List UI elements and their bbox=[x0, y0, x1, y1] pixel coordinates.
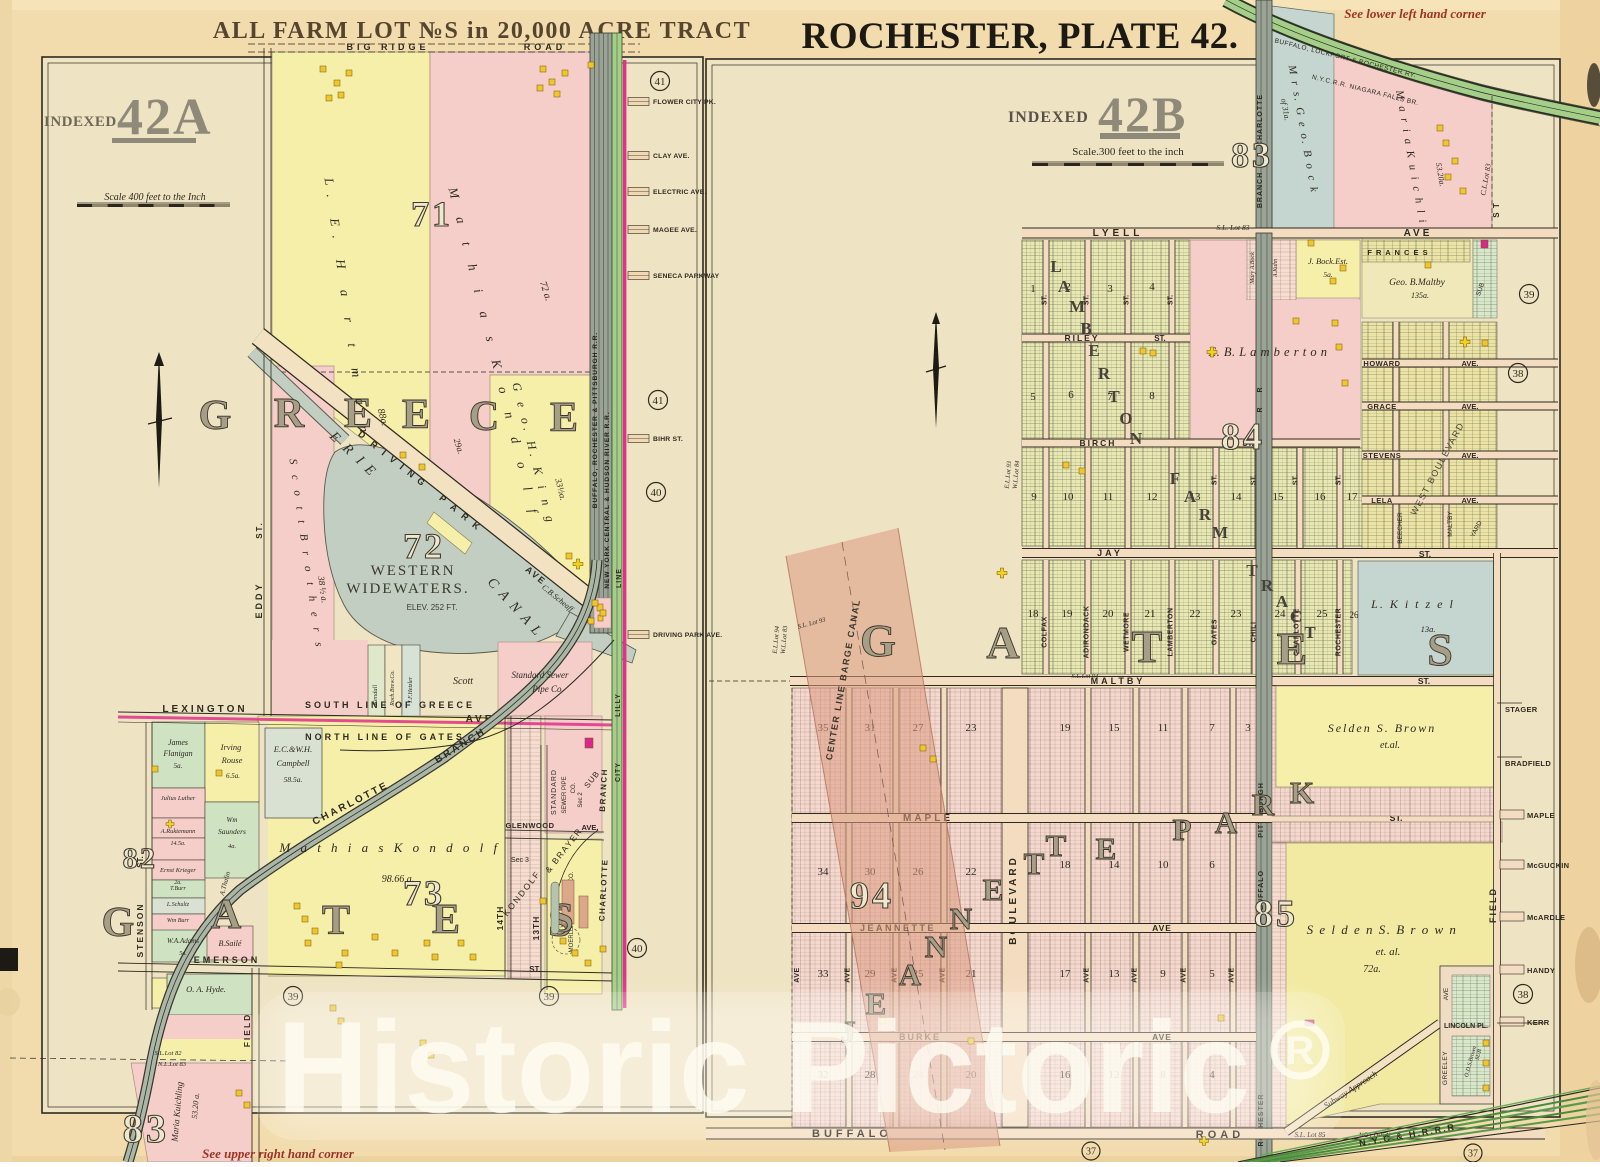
svg-text:MAPLE: MAPLE bbox=[1527, 811, 1555, 820]
svg-text:EMERSON: EMERSON bbox=[194, 955, 261, 965]
svg-text:8: 8 bbox=[1149, 390, 1155, 402]
svg-text:BIHR ST.: BIHR ST. bbox=[653, 436, 683, 443]
svg-text:FLOWER CITY PK.: FLOWER CITY PK. bbox=[653, 99, 716, 106]
svg-text:BRANCH: BRANCH bbox=[1257, 172, 1264, 208]
svg-text:A.Ruktemann: A.Ruktemann bbox=[160, 828, 196, 835]
svg-text:6.5a.: 6.5a. bbox=[226, 772, 240, 780]
svg-text:S.L.Lot 94: S.L.Lot 94 bbox=[1072, 673, 1100, 680]
svg-text:FIELD: FIELD bbox=[1488, 887, 1498, 923]
svg-text:Campbell: Campbell bbox=[276, 758, 310, 768]
svg-text:See upper right hand corne: See upper right hand corner bbox=[202, 1146, 355, 1161]
svg-text:15: 15 bbox=[1109, 722, 1121, 734]
svg-text:GLENWOOD: GLENWOOD bbox=[506, 821, 555, 830]
svg-text:R: R bbox=[274, 391, 305, 437]
svg-text:N.L.Lot 83: N.L.Lot 83 bbox=[157, 1061, 187, 1068]
svg-text:O. A. Hyde.: O. A. Hyde. bbox=[186, 984, 226, 994]
svg-text:WESTERN: WESTERN bbox=[371, 563, 456, 579]
svg-text:R: R bbox=[1252, 787, 1275, 822]
svg-text:GREELEY: GREELEY bbox=[1442, 1051, 1449, 1085]
svg-text:Mary A.Bock: Mary A.Bock bbox=[1250, 252, 1256, 285]
svg-text:WIDEWATERS.: WIDEWATERS. bbox=[346, 581, 469, 597]
svg-text:P: P bbox=[1173, 812, 1192, 847]
svg-text:F: F bbox=[1170, 469, 1180, 488]
svg-text:ST.: ST. bbox=[1336, 475, 1343, 485]
svg-text:5a.: 5a. bbox=[174, 762, 183, 770]
svg-text:ROAD: ROAD bbox=[524, 42, 567, 52]
svg-text:Geo. B.Maltby: Geo. B.Maltby bbox=[1389, 278, 1445, 288]
svg-text:Rouse: Rouse bbox=[221, 755, 243, 765]
svg-text:LYELL: LYELL bbox=[1093, 228, 1144, 239]
svg-text:ELEV. 252 FT.: ELEV. 252 FT. bbox=[407, 603, 458, 612]
svg-text:CO.: CO. bbox=[571, 782, 577, 793]
svg-text:94: 94 bbox=[850, 875, 894, 917]
svg-text:N: N bbox=[950, 901, 972, 936]
svg-text:LINE: LINE bbox=[616, 568, 623, 588]
svg-text:BUFFALO, ROCHESTER & PITTSB: BUFFALO, ROCHESTER & PITTSBURGH R.R. bbox=[592, 332, 599, 508]
svg-text:5a.: 5a. bbox=[1323, 270, 1333, 279]
svg-text:98.66 a.: 98.66 a. bbox=[382, 874, 415, 885]
svg-text:72: 72 bbox=[403, 526, 445, 566]
svg-text:AVE.: AVE. bbox=[1462, 496, 1479, 505]
svg-text:84: 84 bbox=[1221, 416, 1265, 458]
svg-text:Pipe Co.: Pipe Co. bbox=[531, 684, 564, 694]
svg-text:S.L.Lot 82: S.L.Lot 82 bbox=[155, 1050, 183, 1057]
svg-text:MAGEE AVE.: MAGEE AVE. bbox=[653, 227, 697, 234]
svg-text:4: 4 bbox=[1149, 281, 1155, 293]
svg-text:G: G bbox=[199, 393, 232, 439]
svg-text:R: R bbox=[1098, 364, 1111, 383]
svg-text:L. K i t z e l: L. K i t z e l bbox=[1370, 597, 1455, 611]
svg-text:MALTBY: MALTBY bbox=[1091, 676, 1146, 686]
svg-text:GATES: GATES bbox=[1212, 619, 1219, 645]
svg-text:13: 13 bbox=[1109, 968, 1121, 980]
svg-text:L: L bbox=[1050, 257, 1061, 276]
svg-text:83: 83 bbox=[123, 1106, 169, 1151]
svg-text:See lower left hand corner: See lower left hand corner bbox=[1344, 6, 1486, 21]
svg-text:NORTH LINE OF GATES: NORTH LINE OF GATES bbox=[305, 732, 465, 742]
svg-text:13TH: 13TH bbox=[531, 916, 541, 941]
svg-text:ST.: ST. bbox=[1293, 475, 1300, 485]
svg-text:41: 41 bbox=[653, 395, 664, 407]
svg-text:LILLY: LILLY bbox=[615, 693, 622, 717]
svg-text:KERR: KERR bbox=[1527, 1018, 1550, 1027]
svg-text:14.5a.: 14.5a. bbox=[171, 840, 186, 847]
svg-text:McGUCKIN: McGUCKIN bbox=[1527, 861, 1569, 870]
svg-text:6: 6 bbox=[1068, 389, 1074, 401]
svg-text:W.A.Adams: W.A.Adams bbox=[167, 937, 199, 945]
svg-text:STANDARD: STANDARD bbox=[551, 769, 558, 815]
svg-text:20: 20 bbox=[1103, 608, 1115, 620]
svg-text:Scale.300 feet to the inch: Scale.300 feet to the inch bbox=[1072, 146, 1184, 158]
svg-text:37: 37 bbox=[1086, 1147, 1096, 1158]
svg-text:Kendall: Kendall bbox=[372, 685, 379, 707]
svg-text:10: 10 bbox=[1063, 491, 1075, 503]
svg-text:39: 39 bbox=[1524, 289, 1536, 301]
svg-text:T: T bbox=[1246, 561, 1258, 580]
svg-text:82: 82 bbox=[123, 842, 158, 875]
svg-text:F R A N C E S: F R A N C E S bbox=[1367, 248, 1428, 257]
svg-text:1: 1 bbox=[1030, 283, 1036, 295]
svg-text:INDEXED: INDEXED bbox=[1008, 109, 1089, 126]
svg-text:NEW YORK CENTRAL & HUDSON: NEW YORK CENTRAL & HUDSON RIVER R.R. bbox=[604, 411, 611, 588]
svg-text:ST.: ST. bbox=[1154, 334, 1166, 343]
svg-text:HANDY: HANDY bbox=[1527, 966, 1555, 975]
svg-text:S e l d e n S. B r o w n: S e l d e n S. B r o w n bbox=[1307, 922, 1458, 937]
svg-text:A: A bbox=[899, 957, 922, 992]
svg-text:O: O bbox=[1119, 409, 1132, 428]
svg-text:N: N bbox=[1130, 429, 1143, 448]
svg-text:ROCHESTER: ROCHESTER bbox=[1336, 608, 1343, 656]
svg-text:AVE: AVE bbox=[845, 967, 852, 982]
svg-text:LAMBERTON: LAMBERTON bbox=[1168, 607, 1175, 656]
svg-text:LINCOLN PL.: LINCOLN PL. bbox=[1444, 1023, 1488, 1030]
svg-text:17: 17 bbox=[1347, 491, 1359, 503]
svg-text:6: 6 bbox=[1209, 859, 1215, 871]
svg-text:AVE: AVE bbox=[1152, 923, 1172, 933]
svg-text:58.5a.: 58.5a. bbox=[284, 775, 303, 784]
svg-text:33: 33 bbox=[818, 968, 830, 980]
svg-text:E. B. L a m b e r t o n: E. B. L a m b e r t o n bbox=[1208, 345, 1328, 359]
svg-text:T: T bbox=[1024, 846, 1045, 881]
svg-text:LELA: LELA bbox=[1371, 496, 1393, 505]
svg-text:AVE: AVE bbox=[1229, 967, 1236, 982]
svg-text:38: 38 bbox=[1518, 989, 1530, 1001]
svg-text:ALL FARM LOT №S in 20,000 ACRE: ALL FARM LOT №S in 20,000 ACRE TRACT bbox=[213, 18, 751, 44]
svg-text:BEECHER: BEECHER bbox=[1397, 512, 1404, 544]
svg-text:Irving: Irving bbox=[220, 742, 242, 752]
svg-text:GRACE: GRACE bbox=[1367, 402, 1397, 411]
svg-text:K: K bbox=[1290, 775, 1314, 810]
svg-text:83: 83 bbox=[1231, 135, 1273, 175]
svg-text:AVE: AVE bbox=[1084, 967, 1091, 982]
svg-text:71: 71 bbox=[411, 194, 453, 234]
svg-text:38: 38 bbox=[1513, 368, 1525, 380]
svg-text:R: R bbox=[1286, 1029, 1315, 1073]
svg-text:AVE: AVE bbox=[1132, 967, 1139, 982]
svg-text:ADIRONDACK: ADIRONDACK bbox=[1084, 606, 1091, 659]
svg-text:Standard Sewer: Standard Sewer bbox=[512, 670, 569, 680]
svg-text:B.Sailé: B.Sailé bbox=[219, 939, 242, 948]
svg-text:ST.: ST. bbox=[1418, 676, 1430, 686]
svg-text:WETMORE: WETMORE bbox=[1124, 612, 1131, 652]
svg-text:16: 16 bbox=[1315, 491, 1327, 503]
svg-text:41: 41 bbox=[655, 76, 666, 88]
svg-text:T: T bbox=[322, 898, 350, 944]
svg-text:EDDY: EDDY bbox=[254, 581, 264, 618]
svg-text:JAY: JAY bbox=[1097, 548, 1123, 558]
svg-text:S.L. Lot 83: S.L. Lot 83 bbox=[1217, 223, 1250, 232]
svg-text:40: 40 bbox=[651, 487, 663, 499]
svg-text:COLFAX: COLFAX bbox=[1042, 616, 1049, 647]
svg-text:E: E bbox=[402, 392, 430, 438]
svg-text:E: E bbox=[1096, 831, 1117, 866]
svg-text:4a.: 4a. bbox=[228, 843, 237, 850]
svg-text:M: M bbox=[1212, 523, 1228, 542]
svg-text:N: N bbox=[925, 929, 947, 964]
svg-text:17: 17 bbox=[1060, 968, 1072, 980]
svg-text:7: 7 bbox=[1209, 722, 1215, 734]
svg-text:L.Schultz: L.Schultz bbox=[166, 902, 190, 908]
svg-text:BIRCH: BIRCH bbox=[1080, 438, 1117, 448]
svg-text:G: G bbox=[860, 615, 896, 666]
svg-text:LEXINGTON: LEXINGTON bbox=[162, 704, 247, 715]
svg-text:ELECTRIC AVE.: ELECTRIC AVE. bbox=[653, 189, 707, 196]
svg-text:15: 15 bbox=[1273, 491, 1285, 503]
svg-text:C: C bbox=[469, 394, 499, 440]
svg-text:E: E bbox=[550, 395, 578, 441]
svg-text:BIG RIDGE: BIG RIDGE bbox=[346, 42, 429, 52]
svg-text:14: 14 bbox=[1231, 491, 1243, 503]
svg-text:E.C.&W.H.: E.C.&W.H. bbox=[273, 744, 312, 754]
svg-text:40: 40 bbox=[632, 943, 644, 955]
svg-text:SEWER PIPE: SEWER PIPE bbox=[562, 776, 568, 813]
svg-text:R: R bbox=[1199, 505, 1212, 524]
svg-text:ST.: ST. bbox=[1168, 295, 1175, 305]
svg-text:INDEXED: INDEXED bbox=[44, 114, 117, 130]
svg-text:James: James bbox=[168, 738, 188, 747]
svg-text:Sec 2: Sec 2 bbox=[578, 792, 584, 808]
svg-text:19: 19 bbox=[1062, 608, 1074, 620]
svg-text:B: B bbox=[1080, 319, 1091, 338]
svg-text:E: E bbox=[1088, 341, 1099, 360]
svg-text:A: A bbox=[1276, 592, 1289, 611]
svg-text:12: 12 bbox=[1147, 491, 1158, 503]
svg-text:9: 9 bbox=[1160, 968, 1166, 980]
svg-text:18: 18 bbox=[1028, 608, 1040, 620]
svg-text:37: 37 bbox=[1468, 1149, 1478, 1160]
svg-text:Selden S. Brown: Selden S. Brown bbox=[1328, 721, 1437, 735]
svg-text:Sec 3: Sec 3 bbox=[511, 857, 529, 864]
svg-text:Saunders: Saunders bbox=[218, 827, 246, 836]
svg-text:Wm Burr: Wm Burr bbox=[167, 918, 190, 924]
svg-text:26: 26 bbox=[1350, 610, 1360, 620]
svg-text:34: 34 bbox=[818, 866, 830, 878]
svg-text:Scott: Scott bbox=[453, 676, 473, 687]
svg-text:ST.: ST. bbox=[1419, 549, 1431, 559]
svg-text:5: 5 bbox=[1209, 968, 1215, 980]
svg-text:AVE: AVE bbox=[1443, 987, 1450, 1000]
svg-text:22: 22 bbox=[1190, 608, 1201, 620]
svg-text:23: 23 bbox=[1231, 608, 1243, 620]
svg-text:R: R bbox=[1257, 387, 1264, 392]
svg-text:T: T bbox=[1108, 387, 1120, 406]
svg-text:ST.: ST. bbox=[1251, 475, 1258, 485]
svg-text:FIELD: FIELD bbox=[242, 1013, 252, 1048]
svg-text:ST.: ST. bbox=[529, 965, 541, 974]
svg-text:R: R bbox=[1261, 576, 1274, 595]
svg-text:Roch.Brew.Co.: Roch.Brew.Co. bbox=[390, 670, 396, 707]
svg-text:25: 25 bbox=[1317, 608, 1329, 620]
svg-text:McARDLE: McARDLE bbox=[1527, 913, 1565, 922]
svg-text:AVE.: AVE. bbox=[1462, 451, 1479, 460]
svg-text:3: 3 bbox=[1107, 283, 1113, 295]
svg-text:DRIVING PARK AVE.: DRIVING PARK AVE. bbox=[653, 632, 722, 639]
svg-text:E: E bbox=[983, 872, 1004, 907]
svg-text:A: A bbox=[986, 617, 1019, 668]
svg-text:A: A bbox=[1058, 277, 1071, 296]
svg-text:A.Kuhn: A.Kuhn bbox=[1273, 259, 1279, 278]
svg-text:A: A bbox=[211, 892, 242, 938]
svg-text:11: 11 bbox=[1103, 491, 1114, 503]
svg-text:22: 22 bbox=[966, 866, 977, 878]
svg-text:11: 11 bbox=[1158, 722, 1169, 734]
svg-text:AVE.: AVE. bbox=[1462, 359, 1479, 368]
svg-text:AVE: AVE bbox=[794, 967, 801, 982]
svg-text:ST.: ST. bbox=[1042, 295, 1049, 305]
svg-text:J. Bock.Est.: J. Bock.Est. bbox=[1308, 256, 1348, 266]
svg-text:STEVENS: STEVENS bbox=[1363, 451, 1402, 460]
svg-text:Ernst Krieger: Ernst Krieger bbox=[159, 867, 196, 874]
svg-text:et.al.: et.al. bbox=[1380, 740, 1400, 751]
svg-text:5: 5 bbox=[1030, 391, 1036, 403]
svg-text:AVE: AVE bbox=[1181, 967, 1188, 982]
svg-text:42A: 42A bbox=[117, 89, 213, 146]
svg-text:AVE: AVE bbox=[1404, 228, 1433, 239]
svg-text:M a t h i a s K o n d o l f: M a t h i a s K o n d o l f bbox=[278, 840, 500, 855]
svg-text:HOWARD: HOWARD bbox=[1363, 359, 1400, 368]
svg-text:T: T bbox=[1046, 828, 1067, 863]
svg-text:10: 10 bbox=[1158, 859, 1170, 871]
svg-text:A: A bbox=[1215, 805, 1238, 840]
svg-text:Julius Luther: Julius Luther bbox=[161, 795, 196, 802]
svg-text:ROCHESTER, PLATE 42.: ROCHESTER, PLATE 42. bbox=[802, 16, 1239, 57]
svg-text:19: 19 bbox=[1060, 722, 1072, 734]
svg-text:AVE.: AVE. bbox=[1462, 402, 1479, 411]
svg-text:AVE.: AVE. bbox=[582, 823, 599, 832]
svg-text:T: T bbox=[1132, 621, 1163, 672]
svg-text:3: 3 bbox=[1245, 722, 1251, 734]
svg-text:21: 21 bbox=[1145, 608, 1156, 620]
svg-text:A: A bbox=[1184, 487, 1197, 506]
svg-text:E: E bbox=[1277, 623, 1308, 674]
svg-text:Historic Pictoric: Historic Pictoric bbox=[277, 994, 1250, 1140]
svg-text:et. al.: et. al. bbox=[1376, 946, 1401, 958]
svg-text:23: 23 bbox=[966, 722, 978, 734]
svg-text:CITY: CITY bbox=[615, 762, 622, 782]
svg-text:ST.: ST. bbox=[255, 521, 264, 539]
svg-text:135a.: 135a. bbox=[1411, 291, 1429, 300]
svg-text:MALTBY: MALTBY bbox=[1447, 511, 1454, 537]
svg-text:S: S bbox=[1427, 624, 1453, 675]
svg-text:M: M bbox=[1069, 297, 1085, 316]
svg-text:S T: S T bbox=[1492, 202, 1501, 217]
svg-text:ST.: ST. bbox=[1124, 295, 1131, 305]
svg-text:R: R bbox=[1257, 407, 1264, 412]
svg-text:85: 85 bbox=[1254, 893, 1298, 935]
svg-text:STAGER: STAGER bbox=[1505, 705, 1538, 714]
svg-text:Flanigan: Flanigan bbox=[162, 749, 192, 758]
svg-text:72a.: 72a. bbox=[1363, 964, 1381, 975]
svg-text:9: 9 bbox=[1031, 491, 1037, 503]
svg-text:CLAY AVE.: CLAY AVE. bbox=[653, 153, 690, 160]
svg-text:SENECA PARKWAY: SENECA PARKWAY bbox=[653, 273, 720, 280]
svg-text:Wm: Wm bbox=[227, 816, 238, 824]
svg-text:Scale 400 feet to the Inch: Scale 400 feet to the Inch bbox=[104, 192, 205, 203]
svg-text:BRADFIELD: BRADFIELD bbox=[1505, 759, 1551, 768]
svg-text:J.F.Hetzler: J.F.Hetzler bbox=[408, 676, 414, 703]
svg-text:5a.: 5a. bbox=[179, 951, 187, 957]
svg-text:T.Burr: T.Burr bbox=[170, 886, 186, 892]
svg-text:STENSON: STENSON bbox=[135, 902, 145, 957]
svg-text:G: G bbox=[102, 900, 135, 946]
svg-text:ST.: ST. bbox=[1212, 475, 1219, 485]
